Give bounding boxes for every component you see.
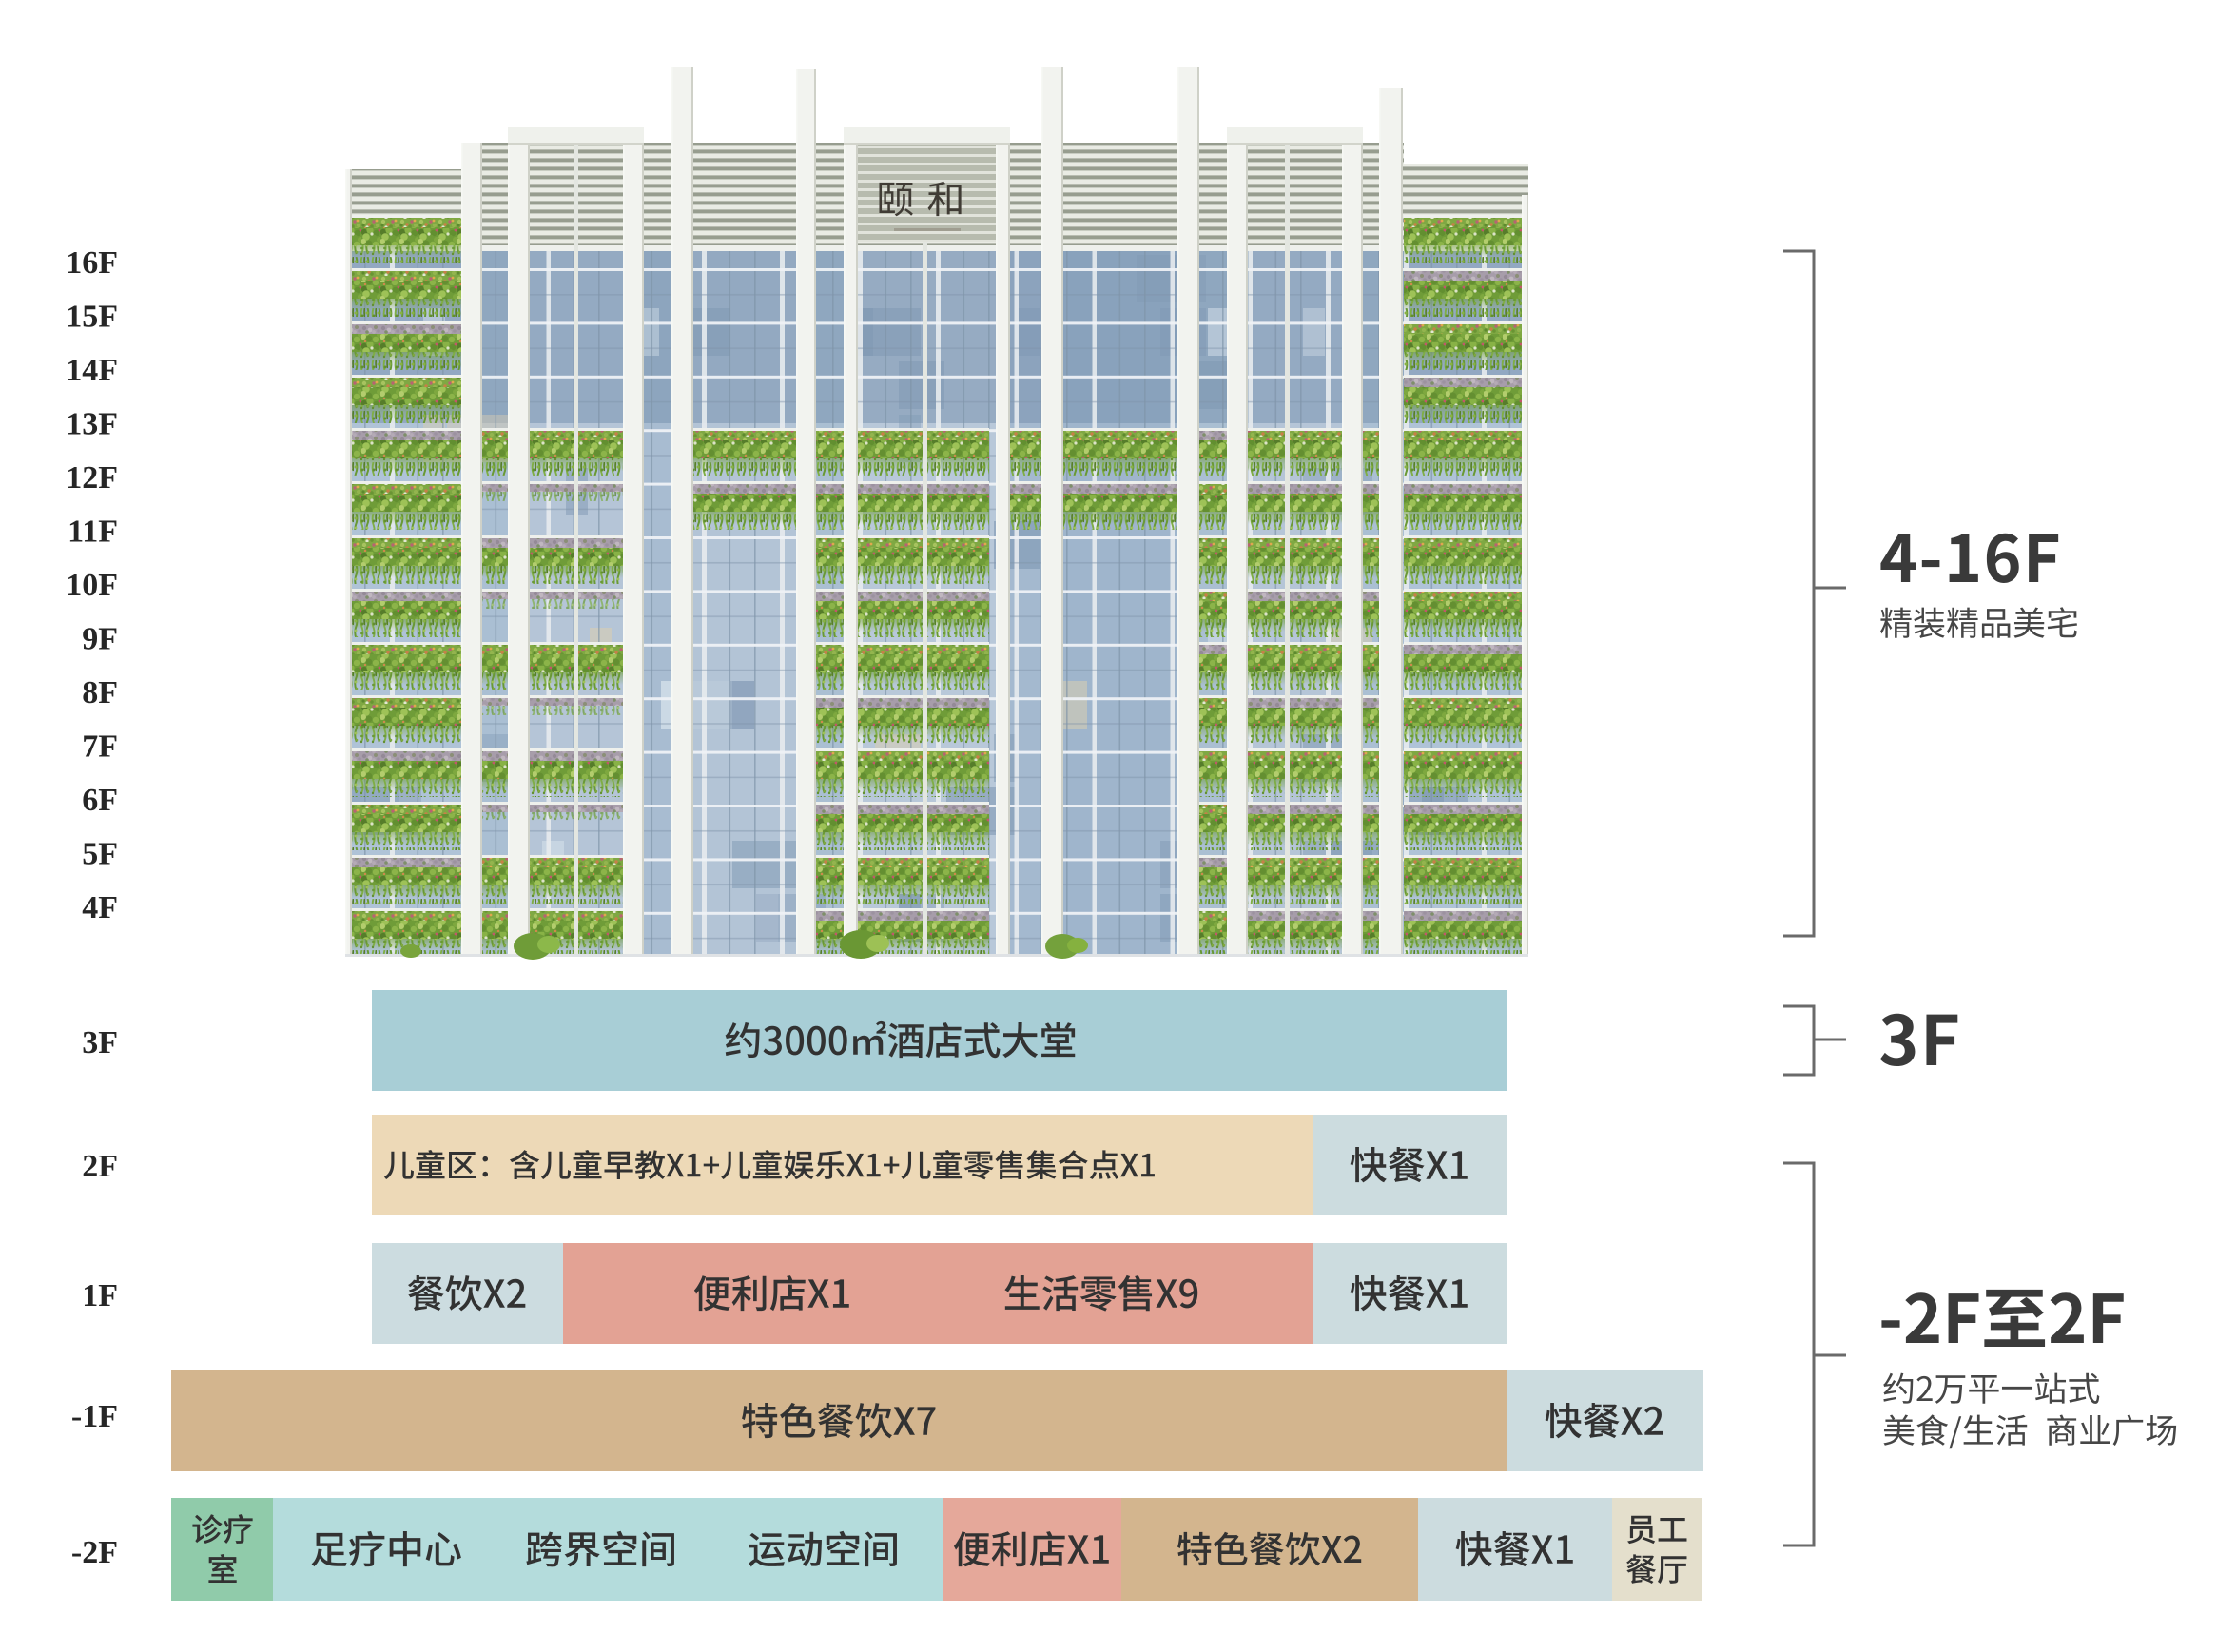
svg-text:12F: 12F [66,460,118,496]
svg-text:8F: 8F [82,675,118,710]
svg-text:9F: 9F [82,622,118,657]
svg-text:5F: 5F [82,837,118,872]
svg-text:-1F: -1F [71,1399,118,1434]
svg-text:-2F: -2F [71,1535,118,1570]
svg-text:16F: 16F [66,245,118,281]
svg-text:4F: 4F [82,890,118,925]
svg-text:2F: 2F [82,1149,118,1184]
svg-text:14F: 14F [66,353,118,388]
svg-text:3F: 3F [82,1025,118,1060]
svg-text:13F: 13F [66,407,118,442]
svg-text:10F: 10F [66,568,118,603]
svg-text:6F: 6F [82,783,118,818]
svg-text:11F: 11F [68,515,118,550]
svg-text:15F: 15F [66,300,118,335]
svg-text:1F: 1F [82,1278,118,1313]
svg-text:7F: 7F [82,729,118,765]
